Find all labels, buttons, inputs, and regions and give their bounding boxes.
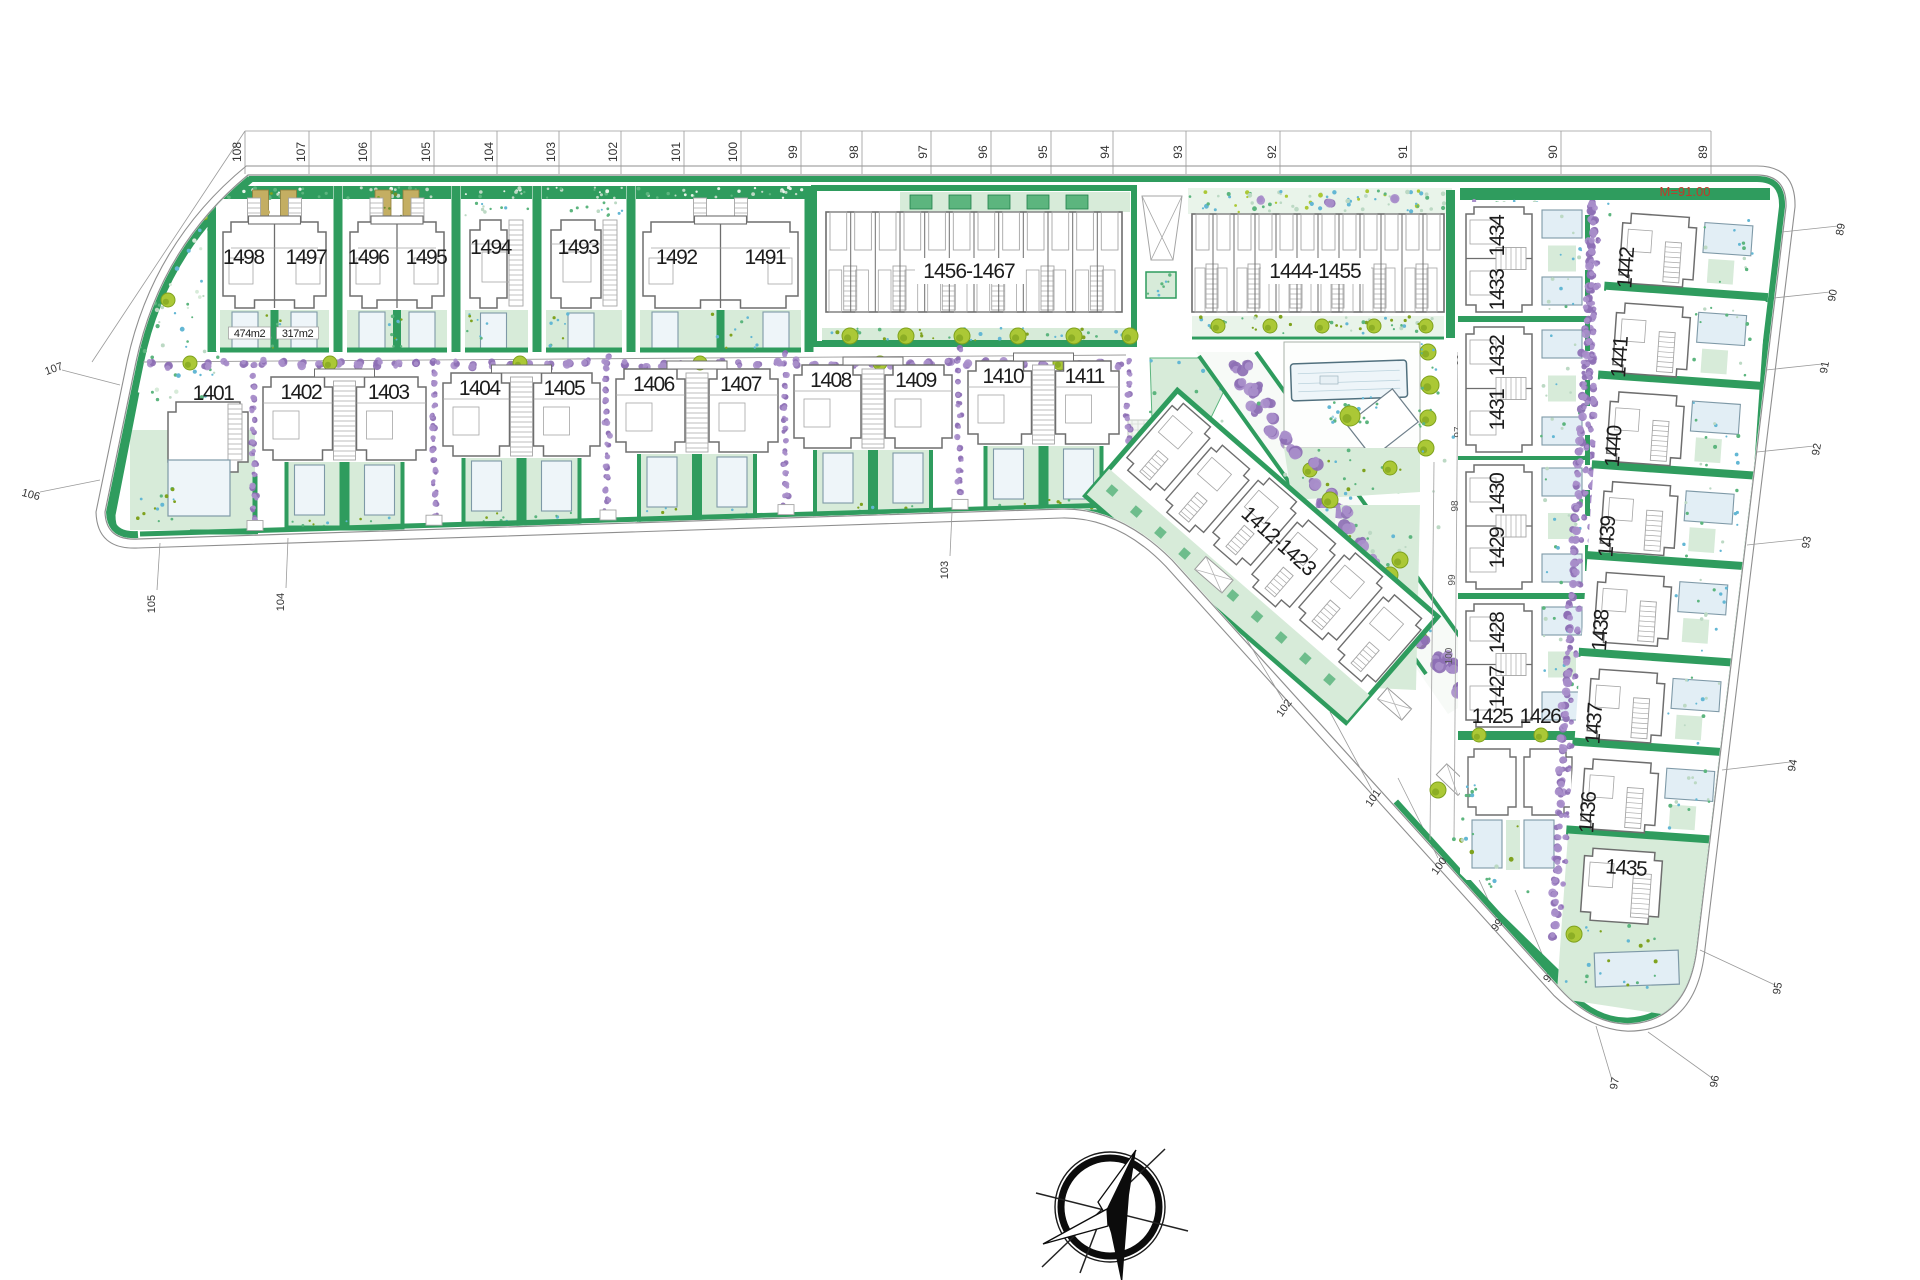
svg-text:103: 103 [939, 561, 951, 579]
svg-text:1427: 1427 [1486, 666, 1509, 708]
svg-text:1403: 1403 [368, 381, 410, 404]
svg-text:1401: 1401 [193, 382, 235, 405]
svg-text:1406: 1406 [633, 373, 675, 396]
svg-text:92: 92 [1265, 145, 1279, 159]
svg-text:106: 106 [356, 142, 370, 162]
svg-text:1438: 1438 [1588, 609, 1614, 652]
svg-text:99: 99 [786, 145, 800, 159]
svg-text:1437: 1437 [1581, 702, 1607, 745]
svg-text:105: 105 [419, 142, 433, 162]
svg-text:97: 97 [916, 145, 930, 159]
svg-text:1444-1455: 1444-1455 [1269, 260, 1361, 283]
svg-text:89: 89 [1696, 145, 1710, 159]
svg-text:1429: 1429 [1486, 527, 1509, 569]
svg-text:1491: 1491 [744, 246, 786, 269]
svg-text:1441: 1441 [1607, 335, 1633, 378]
svg-text:1494: 1494 [470, 236, 513, 259]
svg-text:1405: 1405 [543, 377, 585, 400]
svg-text:1425: 1425 [1472, 705, 1514, 728]
svg-text:1497: 1497 [285, 246, 327, 269]
svg-text:108: 108 [230, 142, 244, 162]
svg-text:1408: 1408 [810, 369, 852, 392]
svg-text:90: 90 [1826, 288, 1840, 302]
svg-text:1496: 1496 [348, 246, 390, 269]
svg-text:103: 103 [544, 142, 558, 162]
svg-text:1410: 1410 [982, 365, 1024, 388]
svg-text:96: 96 [1708, 1074, 1722, 1088]
svg-text:1495: 1495 [406, 246, 448, 269]
svg-text:107: 107 [294, 142, 308, 162]
svg-text:1404: 1404 [459, 377, 502, 400]
svg-text:96: 96 [976, 145, 990, 159]
svg-text:M=91.00: M=91.00 [1660, 184, 1711, 199]
svg-text:94: 94 [1786, 758, 1800, 772]
svg-text:1431: 1431 [1486, 389, 1509, 431]
svg-text:100: 100 [726, 142, 740, 162]
svg-text:104: 104 [482, 142, 496, 162]
svg-text:1435: 1435 [1605, 855, 1648, 881]
svg-text:93: 93 [1800, 535, 1814, 549]
svg-text:1402: 1402 [280, 381, 322, 404]
svg-text:101: 101 [669, 142, 683, 162]
svg-text:1432: 1432 [1486, 335, 1509, 377]
svg-text:1409: 1409 [895, 369, 937, 392]
svg-text:1498: 1498 [223, 246, 265, 269]
svg-text:1436: 1436 [1575, 791, 1601, 834]
svg-text:1426: 1426 [1520, 705, 1562, 728]
svg-text:1428: 1428 [1486, 612, 1509, 654]
svg-text:104: 104 [275, 593, 287, 611]
svg-text:95: 95 [1771, 981, 1785, 995]
svg-text:1407: 1407 [720, 373, 762, 396]
svg-text:1411: 1411 [1065, 365, 1105, 388]
svg-text:91: 91 [1818, 360, 1832, 374]
svg-text:1433: 1433 [1486, 269, 1509, 311]
svg-text:91: 91 [1396, 145, 1410, 159]
svg-text:95: 95 [1036, 145, 1050, 159]
svg-text:98: 98 [847, 145, 861, 159]
svg-text:1430: 1430 [1486, 473, 1509, 515]
svg-text:1493: 1493 [558, 236, 600, 259]
svg-text:94: 94 [1098, 145, 1112, 159]
svg-text:1434: 1434 [1486, 214, 1509, 257]
svg-text:1442: 1442 [1613, 246, 1639, 289]
svg-text:100: 100 [1444, 647, 1455, 664]
svg-text:317m2: 317m2 [282, 328, 314, 340]
svg-text:105: 105 [146, 595, 158, 613]
svg-text:1440: 1440 [1601, 425, 1627, 468]
svg-text:102: 102 [606, 142, 620, 162]
svg-text:1439: 1439 [1594, 515, 1620, 558]
svg-text:90: 90 [1546, 145, 1560, 159]
svg-text:1492: 1492 [656, 246, 698, 269]
svg-text:1456-1467: 1456-1467 [923, 260, 1015, 283]
svg-text:89: 89 [1834, 222, 1848, 236]
svg-text:93: 93 [1171, 145, 1185, 159]
svg-text:99: 99 [1447, 574, 1458, 586]
svg-text:474m2: 474m2 [234, 328, 266, 340]
svg-text:92: 92 [1810, 442, 1824, 456]
svg-text:97: 97 [1608, 1076, 1622, 1090]
